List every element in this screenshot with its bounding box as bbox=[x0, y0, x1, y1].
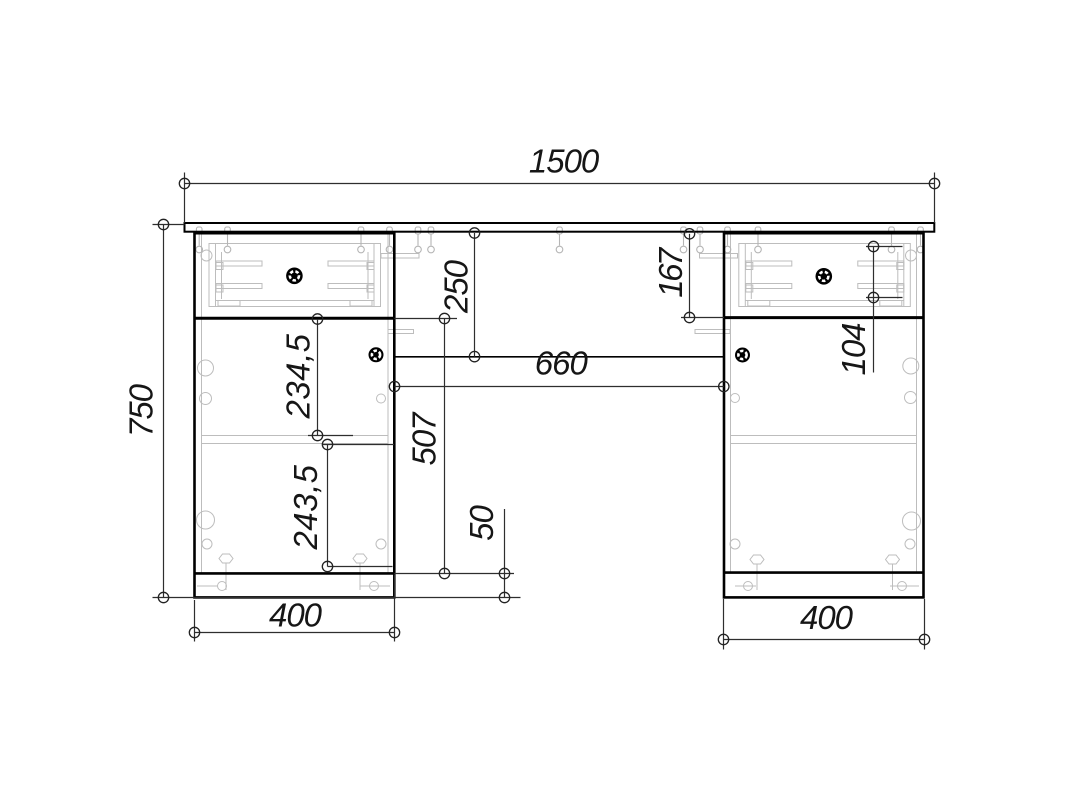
svg-text:104: 104 bbox=[835, 323, 872, 376]
svg-text:400: 400 bbox=[800, 599, 854, 636]
svg-text:167: 167 bbox=[652, 246, 689, 298]
svg-text:50: 50 bbox=[463, 505, 500, 541]
svg-text:660: 660 bbox=[535, 344, 589, 381]
svg-text:750: 750 bbox=[123, 383, 160, 437]
svg-text:250: 250 bbox=[438, 259, 475, 314]
svg-text:400: 400 bbox=[269, 597, 323, 634]
svg-text:243,5: 243,5 bbox=[287, 464, 324, 550]
svg-text:234,5: 234,5 bbox=[280, 333, 317, 419]
svg-text:507: 507 bbox=[406, 411, 443, 466]
svg-text:1500: 1500 bbox=[529, 143, 600, 180]
